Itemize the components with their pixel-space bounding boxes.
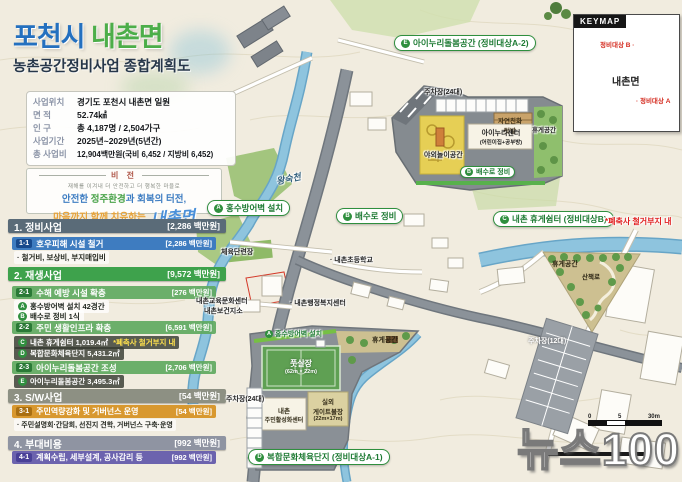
inset-d-rest-label: 휴게공간 (372, 335, 398, 345)
poi-elementary-school: · 내촌초등학교 (330, 255, 373, 265)
news100-watermark: 뉴스100 (517, 413, 680, 478)
inset-c-red-note: *폐축사 철거부지 내 (605, 216, 671, 227)
inset-c-title-pill: C 내촌 휴게쉼터 (정비대상B) (493, 211, 614, 227)
label-line: (어린이집+공부방) (472, 138, 530, 146)
section-4-row-1: 4-1 계획수립, 세부설계, 공사감리 등 [992 백만원] (12, 451, 216, 464)
item-culture-sports: D 복합문화체육단지 5,431.2㎡ (14, 347, 124, 360)
inset-d-gateball-label: 실외 게이트볼장 (22m×17m) (310, 396, 346, 422)
row-label: 주민 생활인프라 확충 (36, 322, 111, 334)
info-row: 인 구총 4,187명 / 2,504가구 (33, 122, 229, 135)
label-line: 실외 (310, 396, 346, 406)
section-title: 4. 부대비용 (14, 436, 62, 451)
map-label-drainage: B 배수로 정비 (336, 208, 403, 224)
inset-c-trail-label: 산책로 (582, 271, 600, 281)
info-value: 52.74㎢ (77, 109, 107, 122)
info-value: 12,904백만원(국비 6,452 / 지방비 6,452) (77, 148, 213, 161)
plan-poster: 포천시 내촌면 농촌공간정비사업 종합계획도 사업위치경기도 포천시 내촌면 일… (0, 0, 682, 482)
vision-line1: 안전한 정주환경과 회복의 터전, (62, 191, 186, 205)
label-line: 주민활성화센터 (263, 415, 305, 424)
circled-letter-a: A (265, 330, 273, 338)
circled-letter-b: B (465, 168, 473, 176)
circled-letter-a: A (214, 204, 223, 213)
info-row: 면 적52.74㎢ (33, 109, 229, 122)
item-childcare: E 아이누리돌봄공간 3,495.3㎡ (14, 375, 124, 388)
info-row: 총 사업비12,904백만원(국비 6,452 / 지방비 6,452) (33, 148, 229, 161)
label-line: 풋살장 (278, 358, 324, 369)
section-2-row-2: 2-2 주민 생활인프라 확충 [6,591 백만원] (12, 321, 216, 334)
vision-title: 비 전 (111, 170, 137, 181)
keymap-site-a-label: · 정비대상 A (636, 95, 670, 105)
pill-text: 복합문화체육단지 (정비대상A-1) (267, 451, 383, 463)
inset-c-rest-label: 휴게공간 (552, 259, 578, 269)
pill-text: 배수로 정비 (355, 210, 396, 222)
poi-edu-culture-center: 내촌교육문화센터 (196, 296, 248, 306)
vision-box: 비 전 재해를 이겨내 더 안전하고 더 행복한 마을로 안전한 정주환경과 회… (26, 168, 222, 214)
row-amount: [2,286 백만원] (165, 238, 212, 249)
section-1-note: · 철거비, 보상비, 부지매입비 (14, 251, 109, 264)
info-value: 경기도 포천시 내촌면 일원 (77, 96, 170, 109)
section-3-header: 3. S/W사업[54 백만원] (8, 389, 226, 403)
circled-letter-b: B (18, 312, 27, 321)
info-label: 사업기간 (33, 135, 77, 148)
vision-tagline: 재해를 이겨내 더 안전하고 더 행복한 마을로 (68, 182, 180, 190)
row-label: 호우피해 시설 철거 (36, 238, 103, 250)
row-amount: [6,591 백만원] (165, 322, 212, 333)
info-row: 사업위치경기도 포천시 내촌면 일원 (33, 96, 229, 109)
inset-d-parking-label: 주차장(24대) (226, 394, 264, 404)
section-2-row-3: 2-3 아이누리돌봄공간 조성 [2,706 백만원] (12, 361, 216, 374)
pill-text: 홍수방어벽 설치 (226, 202, 283, 214)
section-amount: [54 백만원] (179, 390, 220, 402)
title-town: 내촌면 (91, 22, 163, 52)
title-city: 포천시 (13, 22, 85, 52)
inset-e-rest-label: 휴게공간 (532, 124, 556, 134)
circled-letter-c: C (18, 338, 27, 347)
inset-d-wall-label: A 홍수방어벽 설치 (265, 329, 322, 339)
title-block: 포천시 내촌면 농촌공간정비사업 종합계획도 (13, 22, 190, 76)
section-amount: [2,286 백만원] (167, 220, 220, 232)
circled-letter-d: D (255, 453, 264, 462)
keymap-region-label: 내촌면 (612, 73, 640, 88)
poi-admin-welfare-center: · 내촌행정복지센터 (290, 298, 346, 308)
section-2-row-1: 2-1 수해 예방 시설 확충 [276 백만원] (12, 286, 216, 299)
row-amount: [992 백만원] (172, 452, 212, 463)
inset-e-drain-pill: B 배수로 정비 (460, 166, 515, 178)
poi-sports-ground: 체육단련장 (221, 247, 253, 257)
row-badge: 1-1 (16, 239, 32, 248)
section-amount: [992 백만원] (174, 437, 220, 449)
pill-text: 배수로 정비 (476, 167, 510, 177)
label-line: 아이누리센터 (472, 128, 530, 138)
project-info-box: 사업위치경기도 포천시 내촌면 일원 면 적52.74㎢ 인 구총 4,187명… (26, 91, 236, 166)
circled-letter-c: C (500, 215, 509, 224)
info-row: 사업기간2025년~2029년(5년간) (33, 135, 229, 148)
pill-text: 아이누리돌봄공간 (정비대상A-2) (413, 37, 529, 49)
section-2-header: 2. 재생사업[9,572 백만원] (8, 267, 226, 281)
inset-d-title-pill: D 복합문화체육단지 (정비대상A-1) (248, 449, 390, 465)
section-4-header: 4. 부대비용[992 백만원] (8, 436, 226, 450)
keymap-site-b-label: 정비대상 B · (600, 39, 634, 49)
item-text: 아이누리돌봄공간 3,495.3㎡ (30, 376, 120, 387)
vision-header: 비 전 (39, 170, 210, 181)
section-title: 3. S/W사업 (14, 389, 62, 404)
section-title: 1. 정비사업 (14, 219, 62, 234)
section-3-row-1: 3-1 주민역량강화 및 거버넌스 운영 [54 백만원] (12, 405, 216, 418)
info-value: 2025년~2029년(5년간) (77, 135, 161, 148)
poi-health-center: 내촌보건지소 (204, 306, 243, 316)
inset-e-center-label: 아이누리센터 (어린이집+공부방) (472, 128, 530, 146)
row-label: 계획수립, 세부설계, 공사감리 등 (36, 452, 143, 463)
inset-e-title-pill: E 아이누리돌봄공간 (정비대상A-2) (394, 35, 536, 51)
row-badge: 2-1 (16, 288, 32, 297)
page-subtitle: 농촌공간정비사업 종합계획도 (13, 55, 190, 76)
section-1-row-1: 1-1 호우피해 시설 철거 [2,286 백만원] (12, 237, 216, 250)
label-line: 홍수방어벽 설치 (275, 329, 322, 339)
info-label: 면 적 (33, 109, 77, 122)
circled-letter-b: B (343, 212, 352, 221)
label-line: (22m×17m) (310, 416, 346, 422)
info-value: 총 4,187명 / 2,504가구 (77, 122, 160, 135)
section-amount: [9,572 백만원] (167, 268, 220, 280)
label-line: (62m × 22m) (278, 369, 324, 375)
row-badge: 3-1 (16, 407, 32, 416)
label-line: 내촌 (263, 405, 305, 415)
inset-d-center-label: 내촌 주민활성화센터 (263, 405, 305, 424)
pill-text: 내촌 휴게쉼터 (정비대상B) (512, 213, 607, 225)
section-1-header: 1. 정비사업[2,286 백만원] (8, 219, 226, 233)
inset-d-futsal-label: 풋살장 (62m × 22m) (278, 358, 324, 375)
keymap-box: KEYMAP 정비대상 B · 내촌면 · 정비대상 A (573, 14, 680, 132)
row-badge: 4-1 (16, 453, 32, 462)
section-3-note: · 주민설명회·간담회, 선진지 견학, 거버넌스 구축·운영 (14, 419, 176, 431)
keymap-title: KEYMAP (574, 15, 626, 28)
inset-c-parking-label: 주차장(12대) (528, 336, 566, 346)
row-label: 아이누리돌봄공간 조성 (36, 362, 117, 374)
row-badge: 2-3 (16, 363, 32, 372)
row-amount: [2,706 백만원] (165, 362, 212, 373)
row-label: 수해 예방 시설 확충 (36, 287, 106, 299)
row-amount: [54 백만원] (176, 406, 212, 417)
inset-e-playground-label: 야외놀이공간 (424, 150, 463, 160)
label-line: 게이트볼장 (310, 406, 346, 416)
inset-e-parking-label: 주차장(24대) (424, 87, 462, 97)
item-text: 복합문화체육단지 5,431.2㎡ (30, 348, 120, 359)
page-title: 포천시 내촌면 (13, 22, 190, 52)
circled-letter-d: D (18, 349, 27, 358)
info-label: 인 구 (33, 122, 77, 135)
row-badge: 2-2 (16, 323, 32, 332)
map-label-flood-wall: A 홍수방어벽 설치 (207, 200, 290, 216)
label-line: 자연친화 (498, 115, 522, 125)
row-label: 주민역량강화 및 거버넌스 운영 (36, 406, 138, 417)
circled-letter-e: E (18, 377, 27, 386)
info-label: 사업위치 (33, 96, 77, 109)
section-title: 2. 재생사업 (14, 267, 62, 282)
circled-letter-e: E (401, 39, 410, 48)
info-label: 총 사업비 (33, 148, 77, 161)
